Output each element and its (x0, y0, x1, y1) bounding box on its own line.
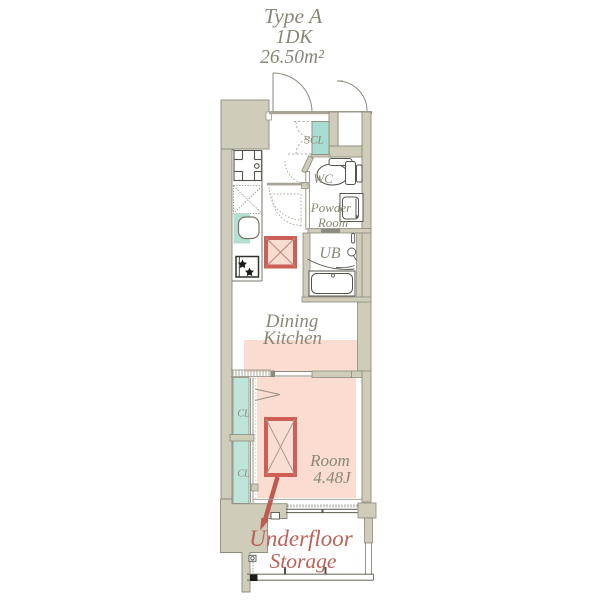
svg-text:CL: CL (237, 469, 250, 480)
svg-text:Type A: Type A (264, 4, 323, 28)
svg-text:CL: CL (237, 409, 250, 420)
svg-text:UB: UB (319, 245, 341, 262)
svg-text:WC: WC (313, 171, 333, 186)
svg-text:4.48J: 4.48J (313, 468, 352, 487)
svg-text:26.50m²: 26.50m² (260, 47, 325, 68)
svg-text:Underfloor: Underfloor (249, 526, 354, 551)
svg-text:1DK: 1DK (276, 27, 314, 48)
svg-text:Kitchen: Kitchen (262, 328, 322, 349)
svg-text:Room: Room (317, 215, 348, 230)
svg-text:Storage: Storage (270, 549, 337, 573)
svg-text:SCL: SCL (304, 135, 324, 147)
svg-text:Powder: Powder (310, 200, 352, 215)
